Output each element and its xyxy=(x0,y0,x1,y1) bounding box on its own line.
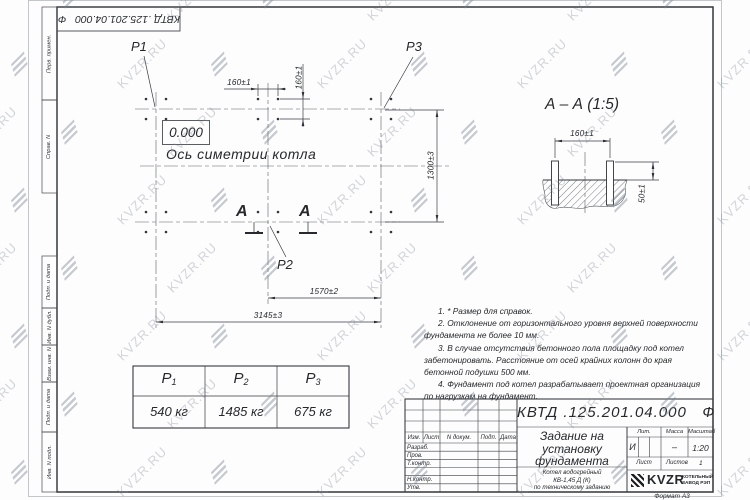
tb-header-podp: Подп. xyxy=(478,435,499,441)
tb-sheets-label: Листов xyxy=(666,460,688,466)
tb-mass-value: – xyxy=(661,442,688,452)
margin-box-perv-primen: Перв. примен. xyxy=(42,7,57,100)
load-subscript: 2 xyxy=(244,377,249,387)
tb-mass-label: Масса xyxy=(661,429,688,435)
title-block-designation: КВТД .125.201.04.000 Ф xyxy=(517,404,713,421)
tb-sheet-label: Лист xyxy=(627,460,661,466)
load-subscript: 3 xyxy=(316,377,321,387)
tb-header-ndokum: N докум. xyxy=(440,435,478,441)
margin-box-label: Инв. N подл. xyxy=(47,445,53,479)
kvzr-logo-text: KVZR xyxy=(647,472,684,487)
margin-box-inv-podl: Инв. N подл. xyxy=(42,432,57,492)
drawing-linework xyxy=(0,0,750,500)
tb-row-utv: Утв. xyxy=(407,485,421,491)
doc-title-line-3: фундамента xyxy=(517,454,627,468)
load-point-label-p1: Р1 xyxy=(131,39,147,54)
dim-160-side: 160±1 xyxy=(295,56,304,100)
margin-box-label: Подп. и дата xyxy=(47,264,53,300)
load-symbol: Р xyxy=(305,370,315,387)
section-cut-marks xyxy=(245,222,317,233)
tb-header-data: Дата xyxy=(499,435,517,441)
note-2: 2. Отклонение от горизонтального уровня … xyxy=(424,317,708,341)
dim-3145: 3145±3 xyxy=(244,311,292,320)
load-value-p1: 540 кг xyxy=(133,404,205,419)
note-4: 4. Фундамент под котел разрабатывает про… xyxy=(424,378,708,402)
margin-boxes-grid xyxy=(42,7,180,492)
margin-box-label: Перв. примен. xyxy=(47,34,53,73)
load-table-header-p1: Р1 xyxy=(133,370,205,387)
format-note: Формат А3 xyxy=(637,493,707,500)
tb-row-tkontr: Т.контр. xyxy=(407,461,431,467)
company-name-line-2: ЗАВОД РЭП xyxy=(682,481,710,486)
level-mark: 0.000 xyxy=(162,120,210,145)
section-dim-50: 50±1 xyxy=(638,172,647,216)
note-1: 1. * Размер для справок. xyxy=(424,305,708,317)
top-designation-text: КВТД .125.201.04.000 Ф xyxy=(58,13,180,25)
section-letter-right: А xyxy=(299,203,311,221)
load-point-label-p2: Р2 xyxy=(277,257,293,272)
tb-row-razrab: Разраб. xyxy=(407,445,429,451)
margin-box-label: Взам. инв. N xyxy=(47,347,53,381)
margin-box-label: Справ. N xyxy=(47,134,53,158)
tb-scale-value: 1:20 xyxy=(688,443,713,453)
margin-box-podp-data-2: Подп. и дата xyxy=(42,382,57,432)
margin-box-vzam-inv: Взам. инв. N xyxy=(42,345,57,382)
section-dim-160: 160±1 xyxy=(558,129,606,138)
tb-row-nkontr: Н.контр. xyxy=(407,477,432,483)
tb-header-izm: Изм. xyxy=(405,435,423,441)
symmetry-axis-label: Ось симетрии котла xyxy=(166,146,316,162)
load-table-header-p2: Р2 xyxy=(205,370,277,387)
dim-1300: 1300±3 xyxy=(427,144,436,188)
drawing-sheet: КВТД .125.201.04.000 Ф Перв. примен. Спр… xyxy=(0,0,750,500)
section-view-geometry xyxy=(543,161,627,208)
note-3: 3. В случае отсутствия бетонного пола пл… xyxy=(424,342,708,379)
load-point-label-p3: Р3 xyxy=(406,39,422,54)
dim-1570: 1570±2 xyxy=(300,287,348,296)
technical-notes: 1. * Размер для справок. 2. Отклонение о… xyxy=(424,305,708,403)
margin-box-label: Инв. N дубл. xyxy=(47,310,53,344)
tb-header-list: Лист xyxy=(423,435,440,441)
margin-box-podp-data-1: Подп. и дата xyxy=(42,256,57,308)
tb-scale-label: Масштаб xyxy=(688,429,713,435)
section-letter-left: А xyxy=(236,203,248,221)
product-line-3: по техническому заданию xyxy=(517,484,627,491)
load-value-p2: 1485 кг xyxy=(205,404,277,419)
product-line-2: КВ-1,45 Д (К) xyxy=(517,477,627,484)
load-value-p3: 675 кг xyxy=(277,404,349,419)
section-view-title: А – А (1:5) xyxy=(545,96,619,114)
kvzr-logo-icon xyxy=(631,474,644,487)
margin-box-label: Подп. и дата xyxy=(47,389,53,425)
load-symbol: Р xyxy=(233,370,243,387)
tb-lit-value: И xyxy=(627,442,638,452)
product-line-1: Котел водогрейный xyxy=(517,469,627,476)
dim-160-top: 160±1 xyxy=(222,78,256,87)
load-symbol: Р xyxy=(161,370,171,387)
tb-lit-label: Лит. xyxy=(627,429,661,435)
margin-box-inv-dubl: Инв. N дубл. xyxy=(42,308,57,345)
scanned-drawing-sheet: { "watermark_text": "KVZR.RU", "margin_b… xyxy=(0,0,750,500)
tb-row-prov: Пров. xyxy=(407,453,423,459)
tb-sheets-value: 1 xyxy=(699,460,703,467)
anchor-bolt-groups xyxy=(145,98,393,234)
company-name-line-1: КОТЕЛЬНЫЙ xyxy=(682,475,713,480)
load-subscript: 1 xyxy=(172,377,177,387)
margin-box-sprav-n: Справ. N xyxy=(42,100,57,193)
load-table-header-p3: Р3 xyxy=(277,370,349,387)
top-designation-stamp: КВТД .125.201.04.000 Ф xyxy=(57,7,180,31)
